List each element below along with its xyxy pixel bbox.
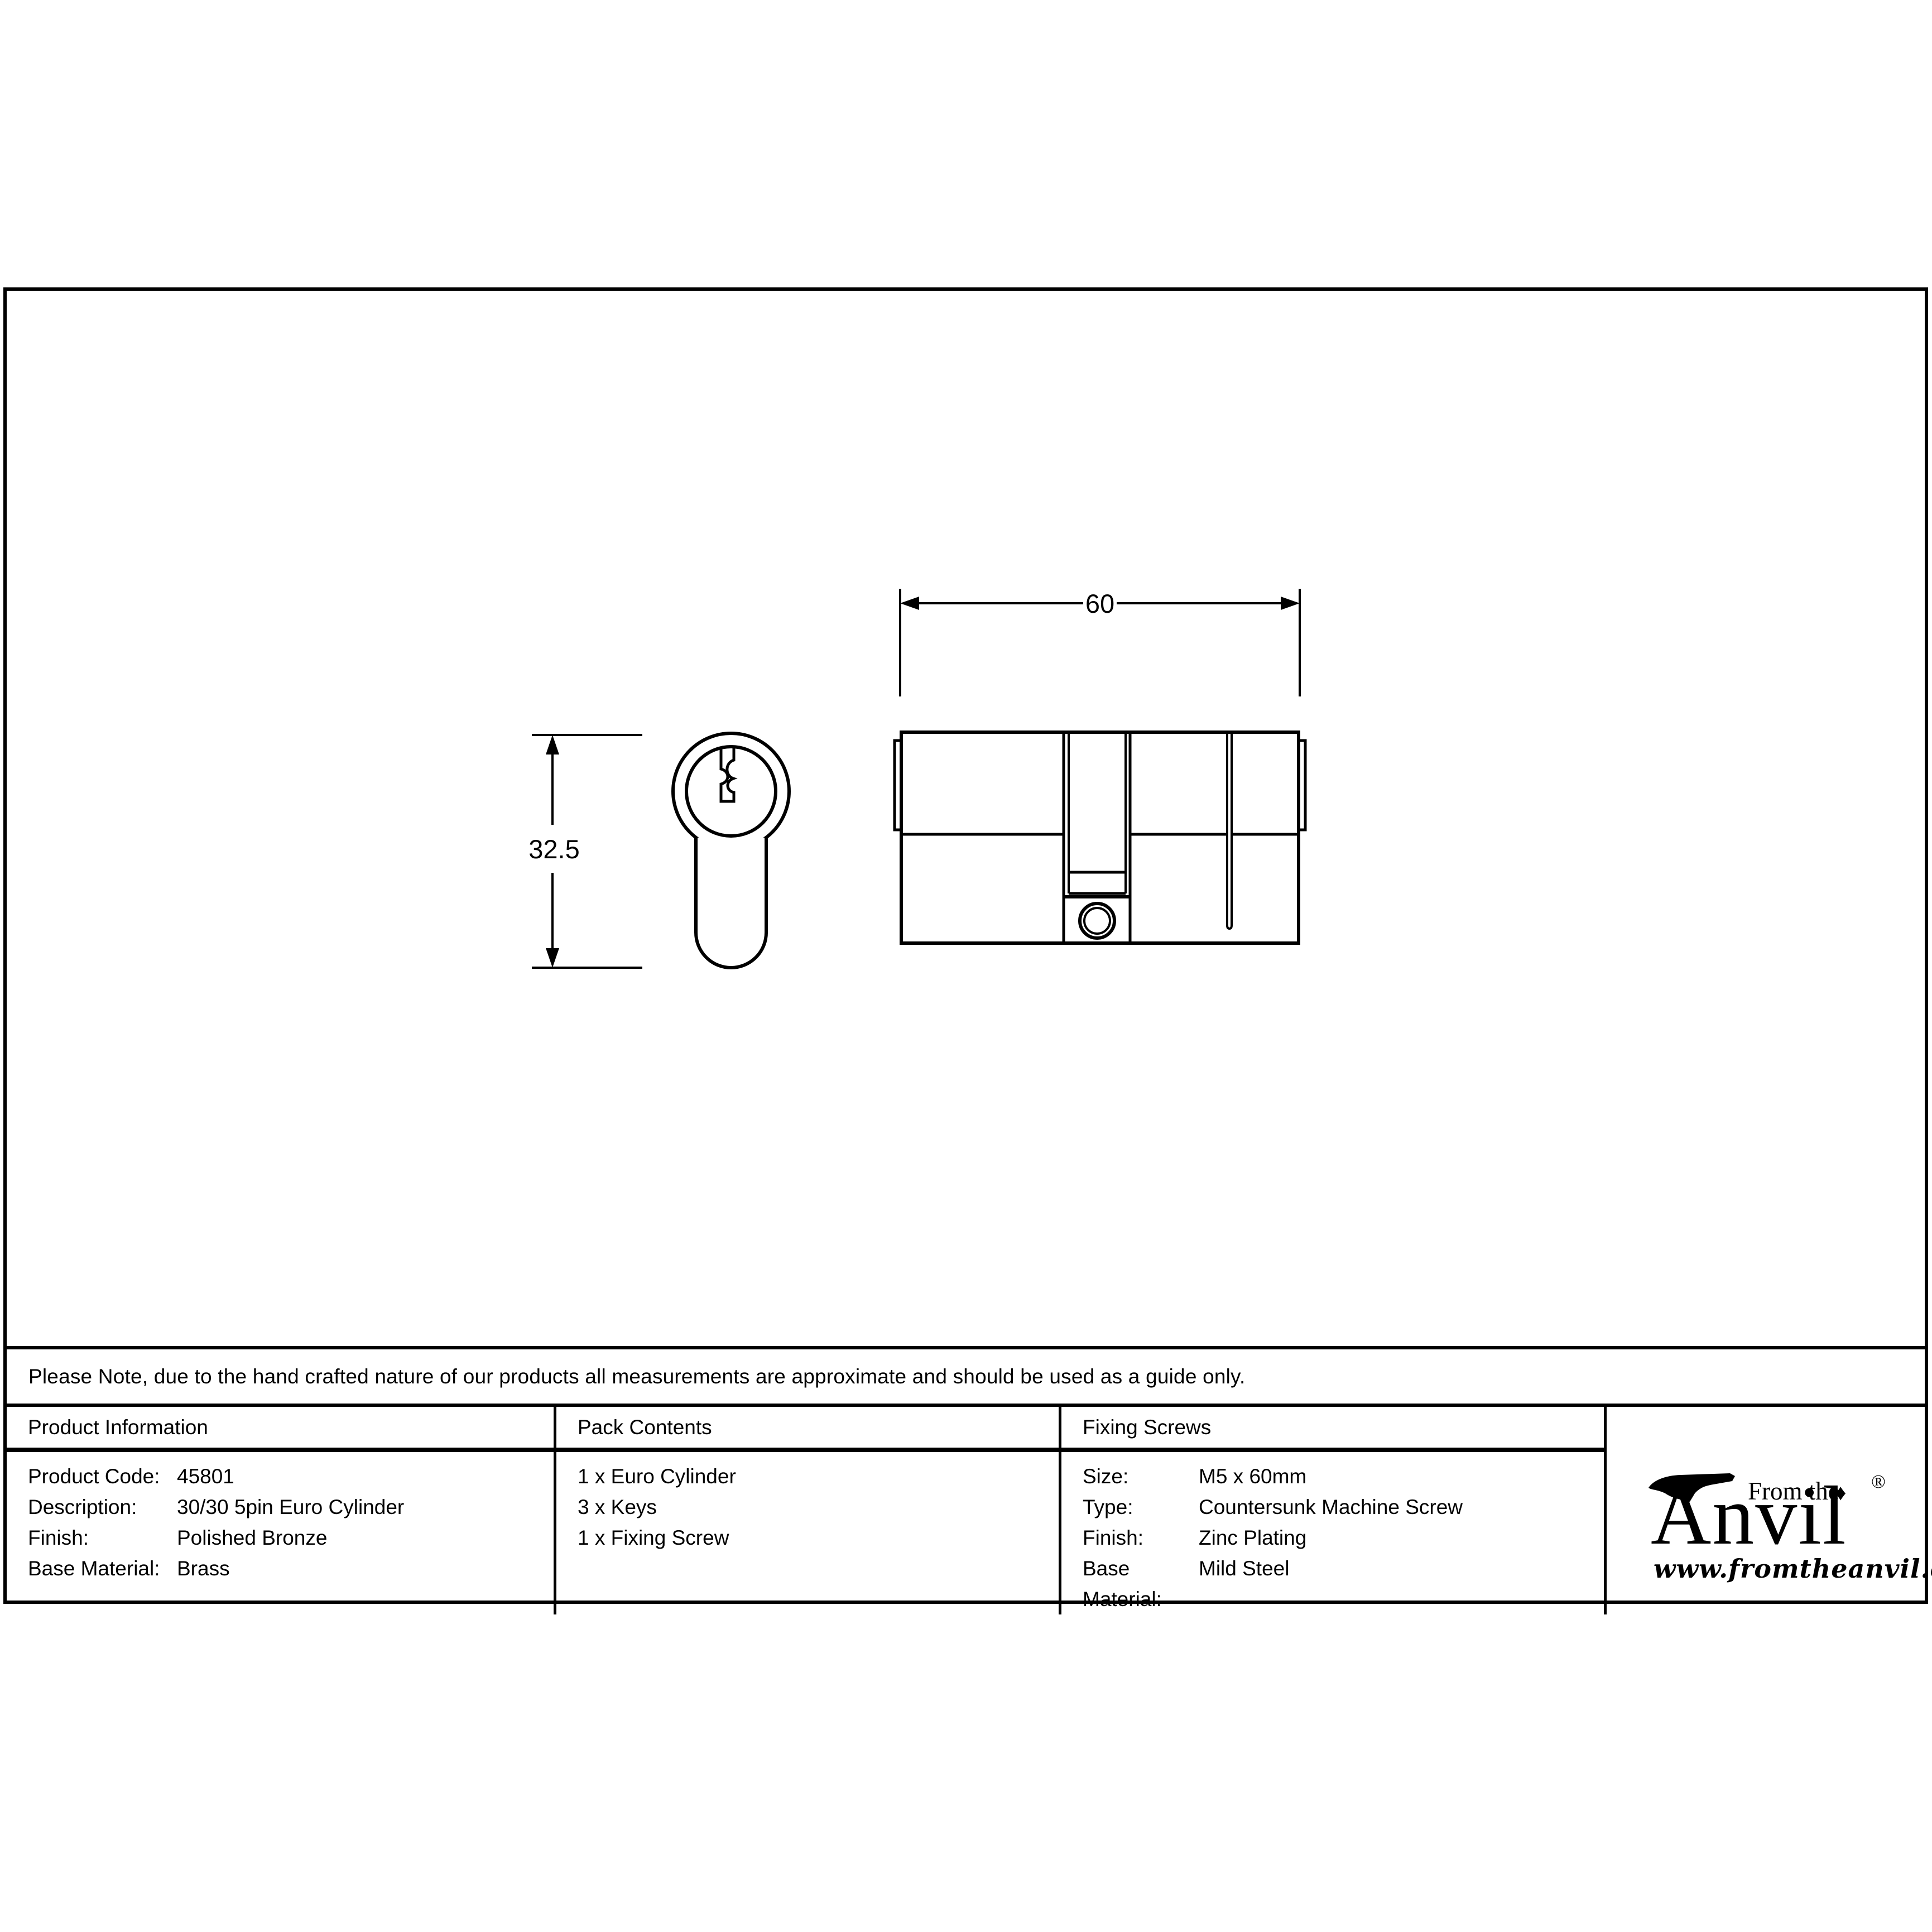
row-label: Base Material:: [1083, 1553, 1199, 1614]
brand-logo: Anvil From the ♦ ® www.fromtheanvil.co.u…: [1607, 1407, 1925, 1614]
logo-url: www.fromtheanvil.co.uk: [1654, 1554, 1932, 1583]
diamond-icon: ♦: [1835, 1482, 1846, 1504]
cylinder-stem: [696, 838, 766, 968]
technical-drawing: 32.5 60: [7, 291, 1925, 1346]
header-product-information-label: Product Information: [28, 1416, 208, 1439]
fixing-screws-cell: Size: M5 x 60mm Type: Countersunk Machin…: [1061, 1452, 1607, 1614]
table-row: Product Code: 45801: [28, 1461, 554, 1492]
cylinder-end-view: [673, 733, 789, 968]
product-information-cell: Product Code: 45801 Description: 30/30 5…: [7, 1452, 556, 1614]
row-value: Zinc Plating: [1199, 1522, 1306, 1553]
row-value: M5 x 60mm: [1199, 1461, 1306, 1492]
list-item: 1 x Euro Cylinder: [578, 1461, 1059, 1492]
arrow-right-icon: [1281, 597, 1300, 610]
table-row: Finish: Polished Bronze: [28, 1522, 554, 1553]
spec-sheet-page: 32.5 60: [0, 0, 1932, 1932]
technical-drawing-box: 32.5 60: [3, 287, 1928, 1349]
row-value: Polished Bronze: [177, 1522, 327, 1553]
arrow-down-icon: [546, 948, 559, 968]
arrow-up-icon: [546, 735, 559, 754]
spec-table: Product Information Pack Contents Fixing…: [3, 1404, 1928, 1604]
row-label: Product Code:: [28, 1461, 177, 1492]
row-label: Description:: [28, 1492, 177, 1522]
arrow-left-icon: [900, 597, 919, 610]
measurement-note-text: Please Note, due to the hand crafted nat…: [7, 1365, 1246, 1388]
width-dimension: 60: [900, 589, 1300, 696]
measurement-note-bar: Please Note, due to the hand crafted nat…: [3, 1349, 1928, 1404]
header-fixing-screws: Fixing Screws: [1061, 1407, 1607, 1452]
row-value: 45801: [177, 1461, 234, 1492]
row-label: Finish:: [28, 1522, 177, 1553]
logo-tagline: From the: [1748, 1479, 1839, 1504]
registered-trademark-icon: ®: [1871, 1473, 1886, 1492]
height-dimension: 32.5: [528, 735, 642, 968]
row-value: Countersunk Machine Screw: [1199, 1492, 1463, 1522]
list-item: 3 x Keys: [578, 1492, 1059, 1522]
row-label: Type:: [1083, 1492, 1199, 1522]
header-fixing-screws-label: Fixing Screws: [1083, 1416, 1211, 1439]
width-dimension-label: 60: [1085, 589, 1114, 618]
header-pack-contents: Pack Contents: [556, 1407, 1061, 1452]
row-label: Base Material:: [28, 1553, 177, 1584]
list-item: 1 x Fixing Screw: [578, 1522, 1059, 1553]
table-row: Type: Countersunk Machine Screw: [1083, 1492, 1604, 1522]
table-row: Size: M5 x 60mm: [1083, 1461, 1604, 1492]
row-label: Finish:: [1083, 1522, 1199, 1553]
table-row: Base Material: Mild Steel: [1083, 1553, 1604, 1614]
row-value: Brass: [177, 1553, 230, 1584]
row-value: 30/30 5pin Euro Cylinder: [177, 1492, 404, 1522]
cylinder-side-view: [895, 732, 1305, 943]
table-row: Finish: Zinc Plating: [1083, 1522, 1604, 1553]
row-value: Mild Steel: [1199, 1553, 1289, 1614]
cylinder-body: [901, 732, 1299, 943]
height-dimension-label: 32.5: [528, 834, 579, 864]
header-pack-contents-label: Pack Contents: [578, 1416, 712, 1439]
table-row: Base Material: Brass: [28, 1553, 554, 1584]
pack-contents-cell: 1 x Euro Cylinder 3 x Keys 1 x Fixing Sc…: [556, 1452, 1061, 1614]
table-row: Description: 30/30 5pin Euro Cylinder: [28, 1492, 554, 1522]
header-product-information: Product Information: [7, 1407, 556, 1452]
row-label: Size:: [1083, 1461, 1199, 1492]
